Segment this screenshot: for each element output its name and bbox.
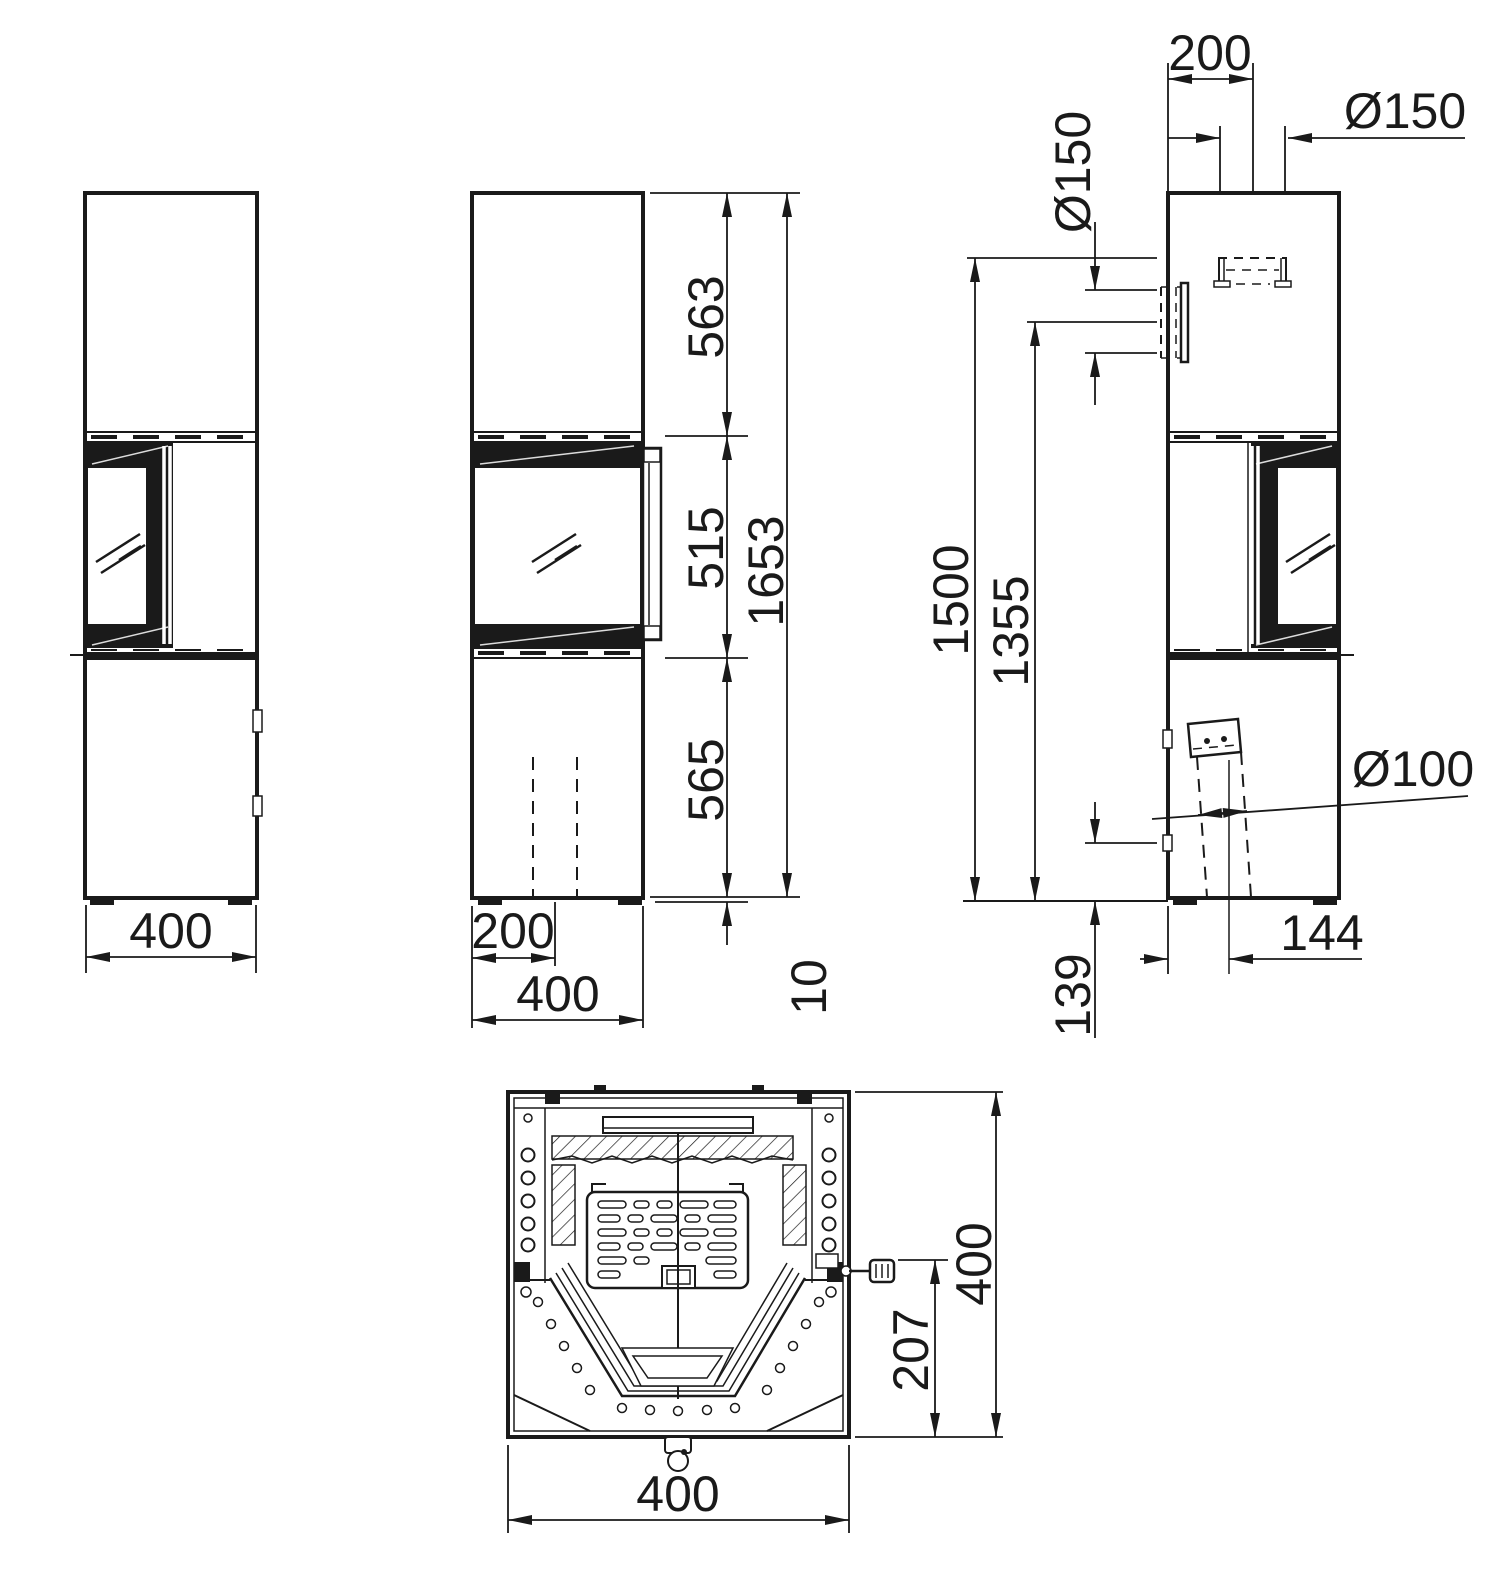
front-flue-offset-label: 200 <box>471 903 554 959</box>
right-rear-flue-dia-label: Ø150 <box>1045 111 1101 233</box>
bottom-section-view: 400 207 400 <box>508 1085 1003 1533</box>
bottom-depth-label: 400 <box>946 1222 1002 1305</box>
dim-right-top: 200 Ø150 <box>1168 25 1466 191</box>
bottom-width-label: 400 <box>636 1466 719 1522</box>
dim-front-heights: 563 515 565 1653 10 <box>650 193 837 1015</box>
stove-dimension-drawing: 400 <box>0 0 1500 1584</box>
dim-front-widths: 200 400 <box>471 902 643 1028</box>
left-side-view: 400 <box>70 193 262 973</box>
front-seg-top-label: 563 <box>678 275 734 358</box>
right-intake-height-label: 139 <box>1045 953 1101 1036</box>
left-width-label: 400 <box>129 903 212 959</box>
left-view-glass <box>87 467 147 625</box>
right-view-glass <box>1277 467 1337 625</box>
right-intake-dia-label: Ø100 <box>1352 741 1474 797</box>
front-total-height-label: 1653 <box>738 515 794 626</box>
dim-right-heights: Ø150 1500 1355 139 <box>923 111 1168 1038</box>
bottom-handle-depth-label: 207 <box>883 1308 939 1391</box>
rear-duct <box>603 1117 753 1133</box>
right-top-flue-height-label: 1500 <box>923 544 979 655</box>
front-view: 563 515 565 1653 10 200 400 <box>471 193 837 1028</box>
technical-drawing-canvas: 400 <box>0 0 1500 1584</box>
front-seg-base-label: 565 <box>678 738 734 821</box>
front-width-label: 400 <box>516 966 599 1022</box>
front-foot-height-label: 10 <box>781 959 837 1015</box>
front-seg-window-label: 515 <box>678 506 734 589</box>
right-side-view: 200 Ø150 Ø150 1500 1355 139 <box>923 25 1474 1038</box>
dim-left-width: 400 <box>86 903 256 973</box>
right-intake-offset-label: 144 <box>1280 905 1363 961</box>
right-top-flue-dia-label: Ø150 <box>1344 83 1466 139</box>
air-grate <box>587 1184 748 1288</box>
front-door-edge <box>643 448 661 640</box>
right-top-flue-offset-label: 200 <box>1168 25 1251 81</box>
right-rear-flue-height-label: 1355 <box>983 575 1039 686</box>
